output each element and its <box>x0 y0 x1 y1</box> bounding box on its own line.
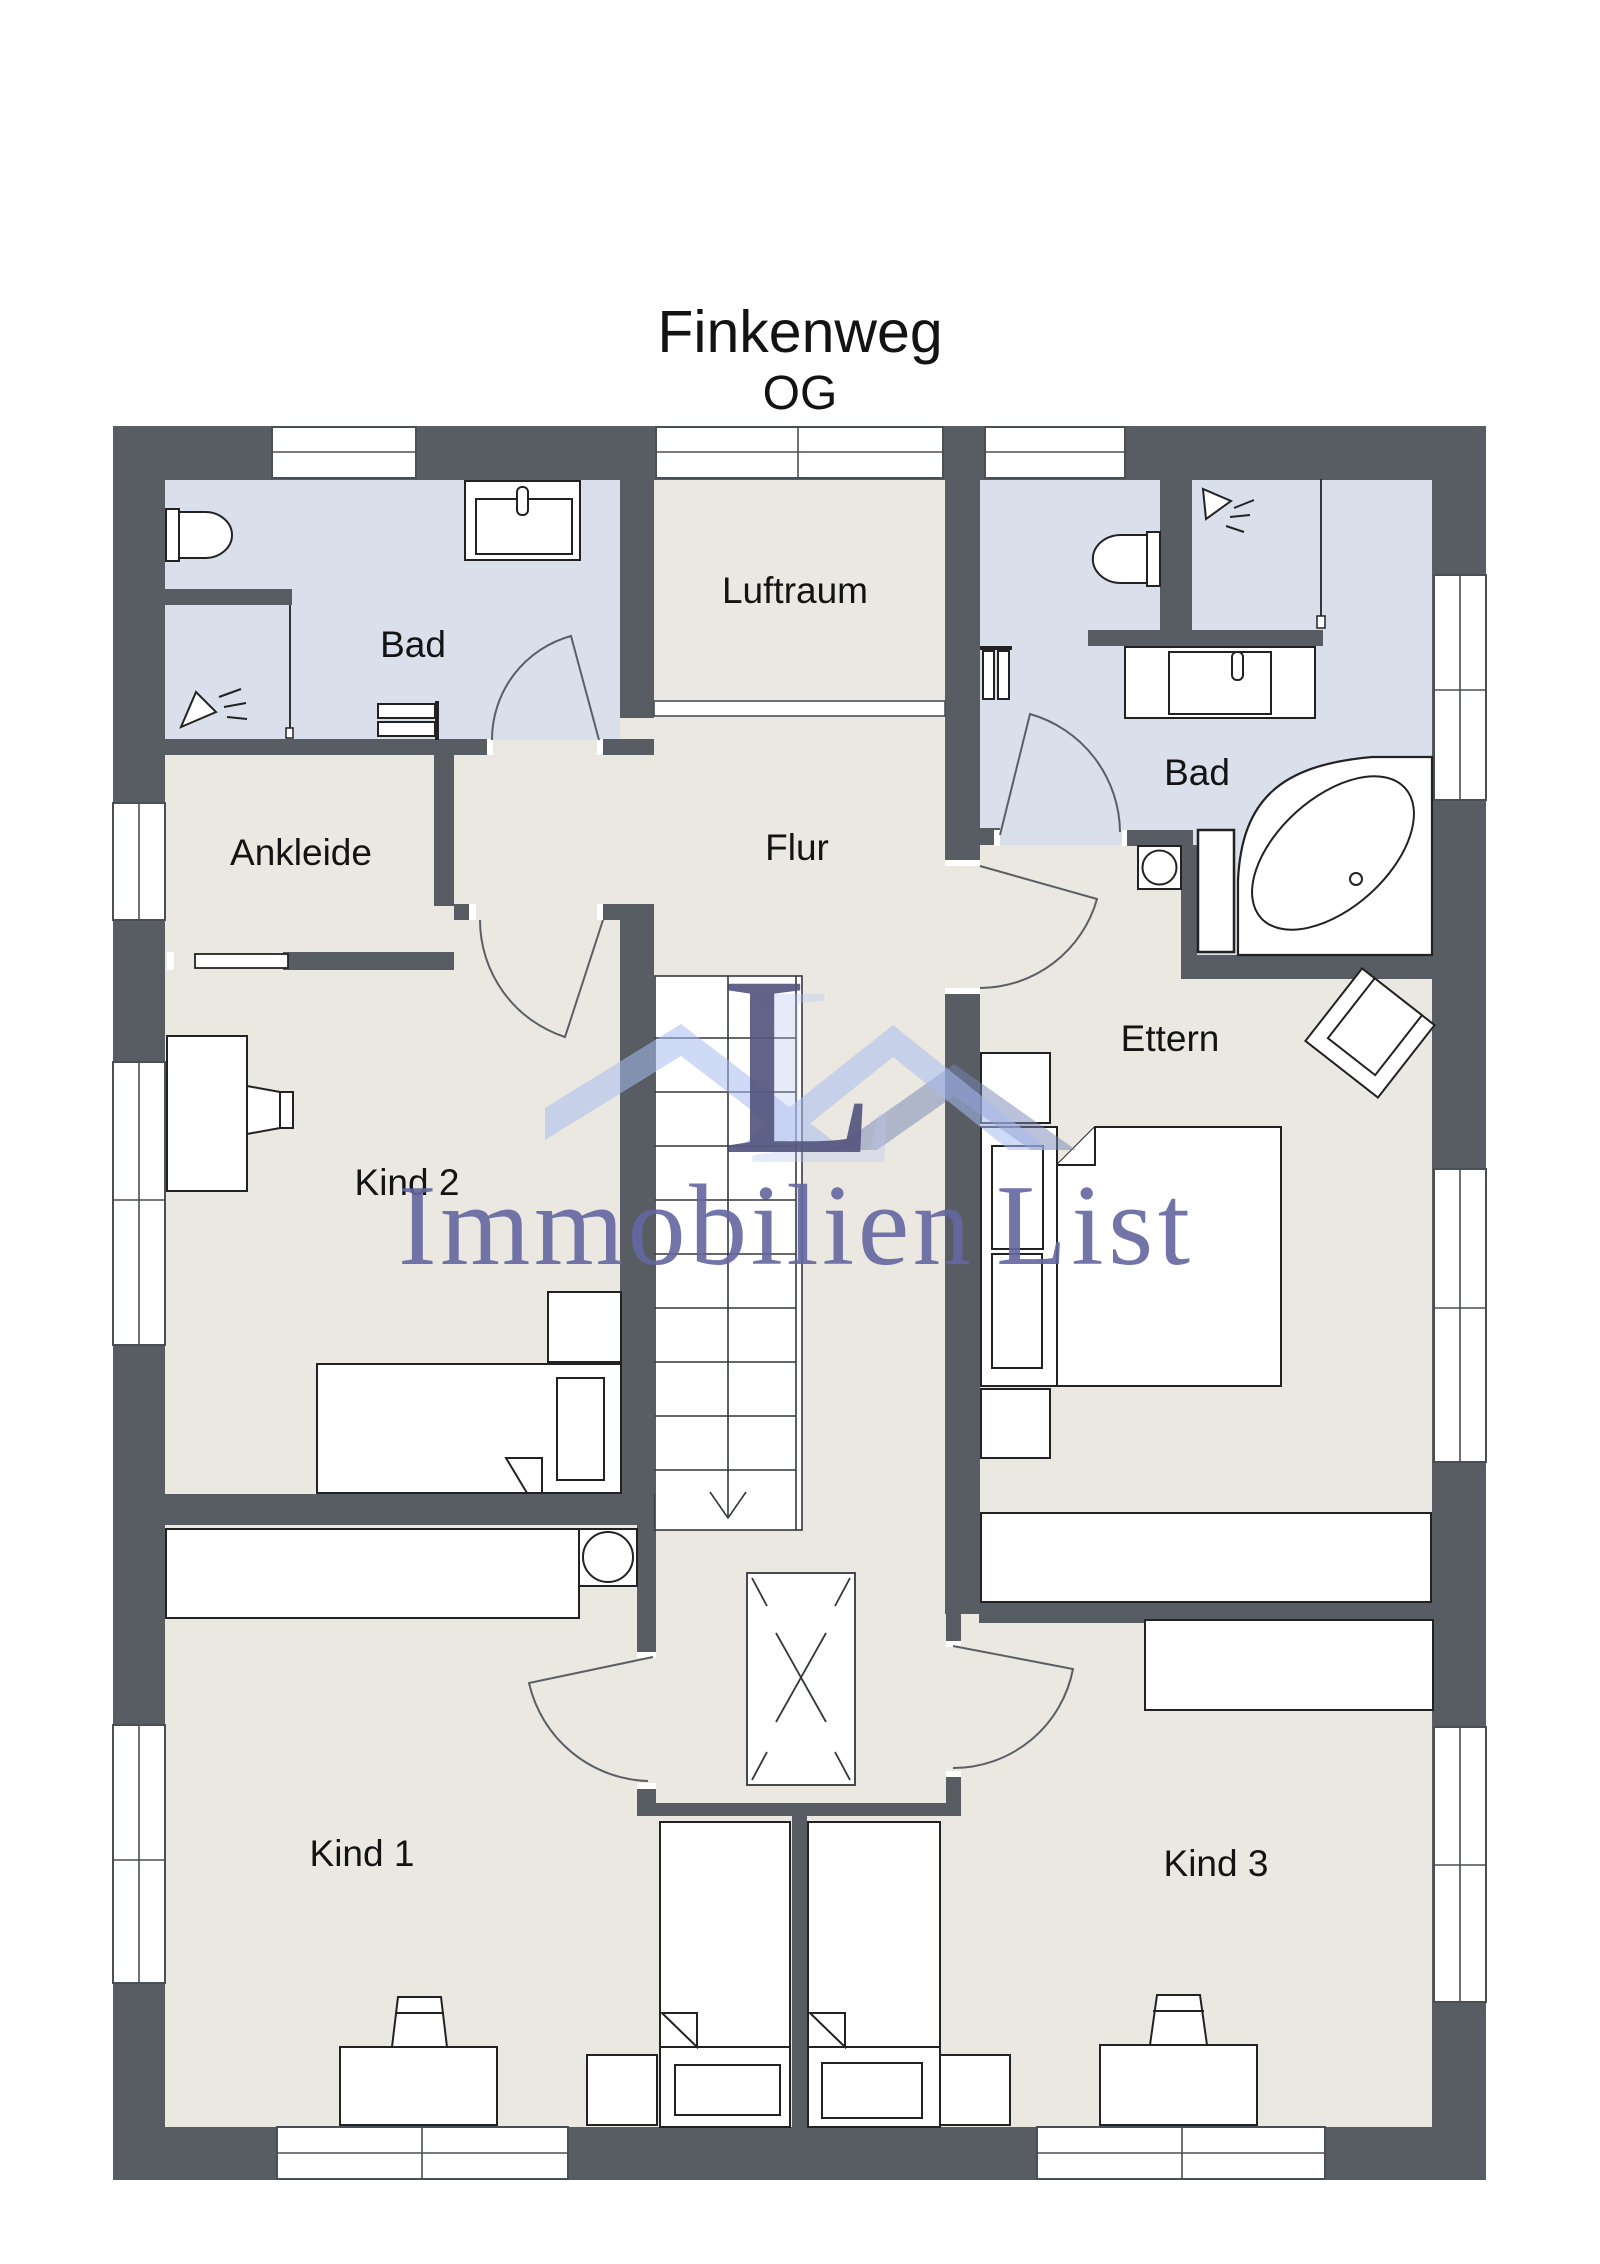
svg-text:Ettern: Ettern <box>1121 1018 1220 1059</box>
svg-text:Kind 1: Kind 1 <box>310 1833 415 1874</box>
svg-text:Bad: Bad <box>380 624 446 665</box>
svg-text:Bad: Bad <box>1164 752 1230 793</box>
svg-text:Kind 3: Kind 3 <box>1164 1843 1269 1884</box>
svg-text:Finkenweg: Finkenweg <box>657 299 942 365</box>
svg-text:Luftraum: Luftraum <box>722 570 868 611</box>
svg-text:Ankleide: Ankleide <box>230 832 372 873</box>
svg-text:OG: OG <box>763 367 838 420</box>
svg-text:ImmobilienList: ImmobilienList <box>398 1162 1194 1290</box>
svg-text:Flur: Flur <box>765 827 829 868</box>
